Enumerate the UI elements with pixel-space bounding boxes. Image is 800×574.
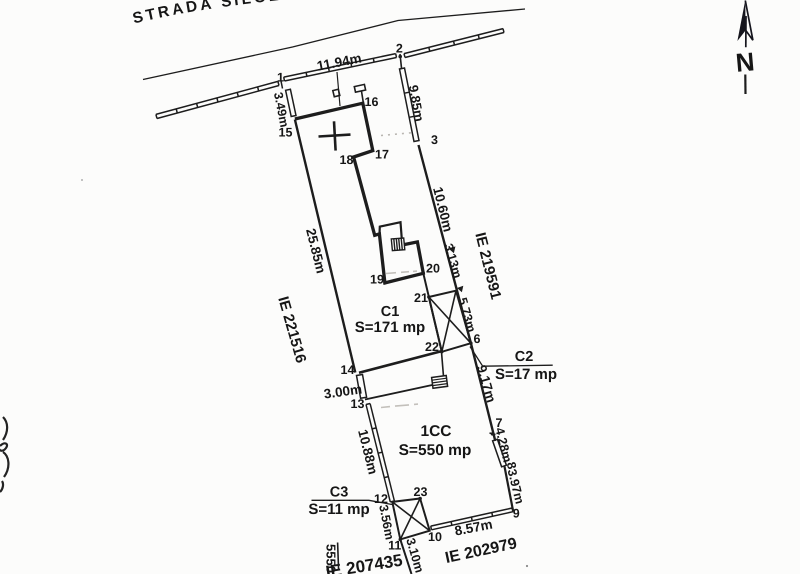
svg-text:19: 19	[370, 273, 384, 287]
svg-text:5550: 5550	[324, 544, 339, 573]
svg-text:1CC: 1CC	[420, 423, 451, 440]
svg-text:17: 17	[375, 148, 389, 162]
svg-text:10: 10	[428, 530, 442, 544]
svg-text:14: 14	[341, 363, 355, 377]
svg-text:21: 21	[414, 291, 428, 305]
svg-text:S=171 mp: S=171 mp	[355, 319, 425, 336]
svg-text:C2: C2	[515, 349, 534, 365]
svg-text:20: 20	[426, 262, 440, 276]
svg-text:S=11 mp: S=11 mp	[308, 501, 369, 518]
svg-text:N: N	[734, 46, 755, 78]
svg-text:S=550 mp: S=550 mp	[399, 442, 472, 459]
svg-text:13: 13	[351, 397, 365, 411]
svg-text:18: 18	[340, 153, 354, 167]
svg-text:S=17 mp: S=17 mp	[495, 366, 557, 383]
svg-text:C1: C1	[381, 304, 400, 320]
svg-text:C3: C3	[330, 485, 349, 501]
svg-text:2: 2	[396, 42, 403, 56]
svg-text:6: 6	[474, 332, 481, 346]
svg-text:16: 16	[365, 95, 379, 109]
svg-text:15: 15	[279, 126, 293, 140]
svg-text:3: 3	[431, 133, 438, 147]
svg-text:23: 23	[414, 485, 428, 499]
svg-text:9: 9	[513, 507, 520, 521]
